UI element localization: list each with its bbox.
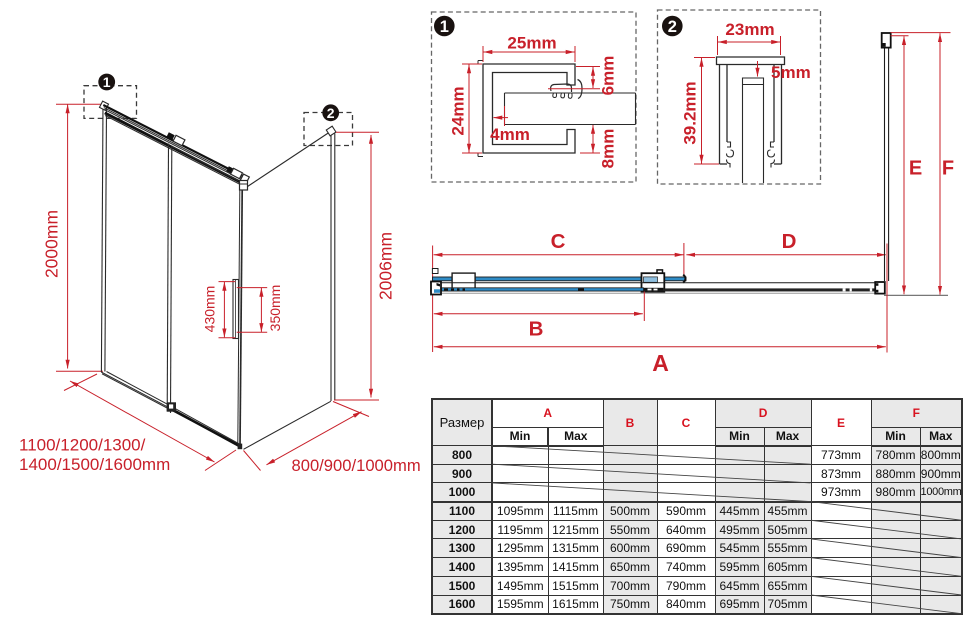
svg-text:2000mm: 2000mm [42,210,62,278]
svg-text:4mm: 4mm [490,125,530,144]
svg-text:2: 2 [668,18,677,36]
svg-text:2006mm: 2006mm [376,232,396,300]
svg-text:E: E [909,158,922,180]
svg-text:1: 1 [103,74,111,90]
svg-text:C: C [551,230,566,253]
svg-text:D: D [782,230,797,253]
svg-text:1400/1500/1600mm: 1400/1500/1600mm [19,455,170,474]
svg-text:8mm: 8mm [599,129,618,169]
svg-text:430mm: 430mm [202,286,218,333]
svg-text:A: A [652,350,669,376]
svg-text:1: 1 [440,18,449,36]
svg-text:2: 2 [327,105,335,121]
svg-text:25mm: 25mm [507,34,556,53]
svg-text:F: F [942,158,954,180]
svg-text:23mm: 23mm [725,20,774,39]
svg-text:350mm: 350mm [267,285,283,332]
svg-text:39.2mm: 39.2mm [681,81,700,144]
svg-text:800/900/1000mm: 800/900/1000mm [292,456,421,475]
svg-text:24mm: 24mm [449,86,468,135]
svg-text:B: B [529,318,544,341]
svg-text:6mm: 6mm [599,56,618,96]
svg-text:1100/1200/1300/: 1100/1200/1300/ [19,436,146,455]
svg-text:5mm: 5mm [771,63,811,82]
